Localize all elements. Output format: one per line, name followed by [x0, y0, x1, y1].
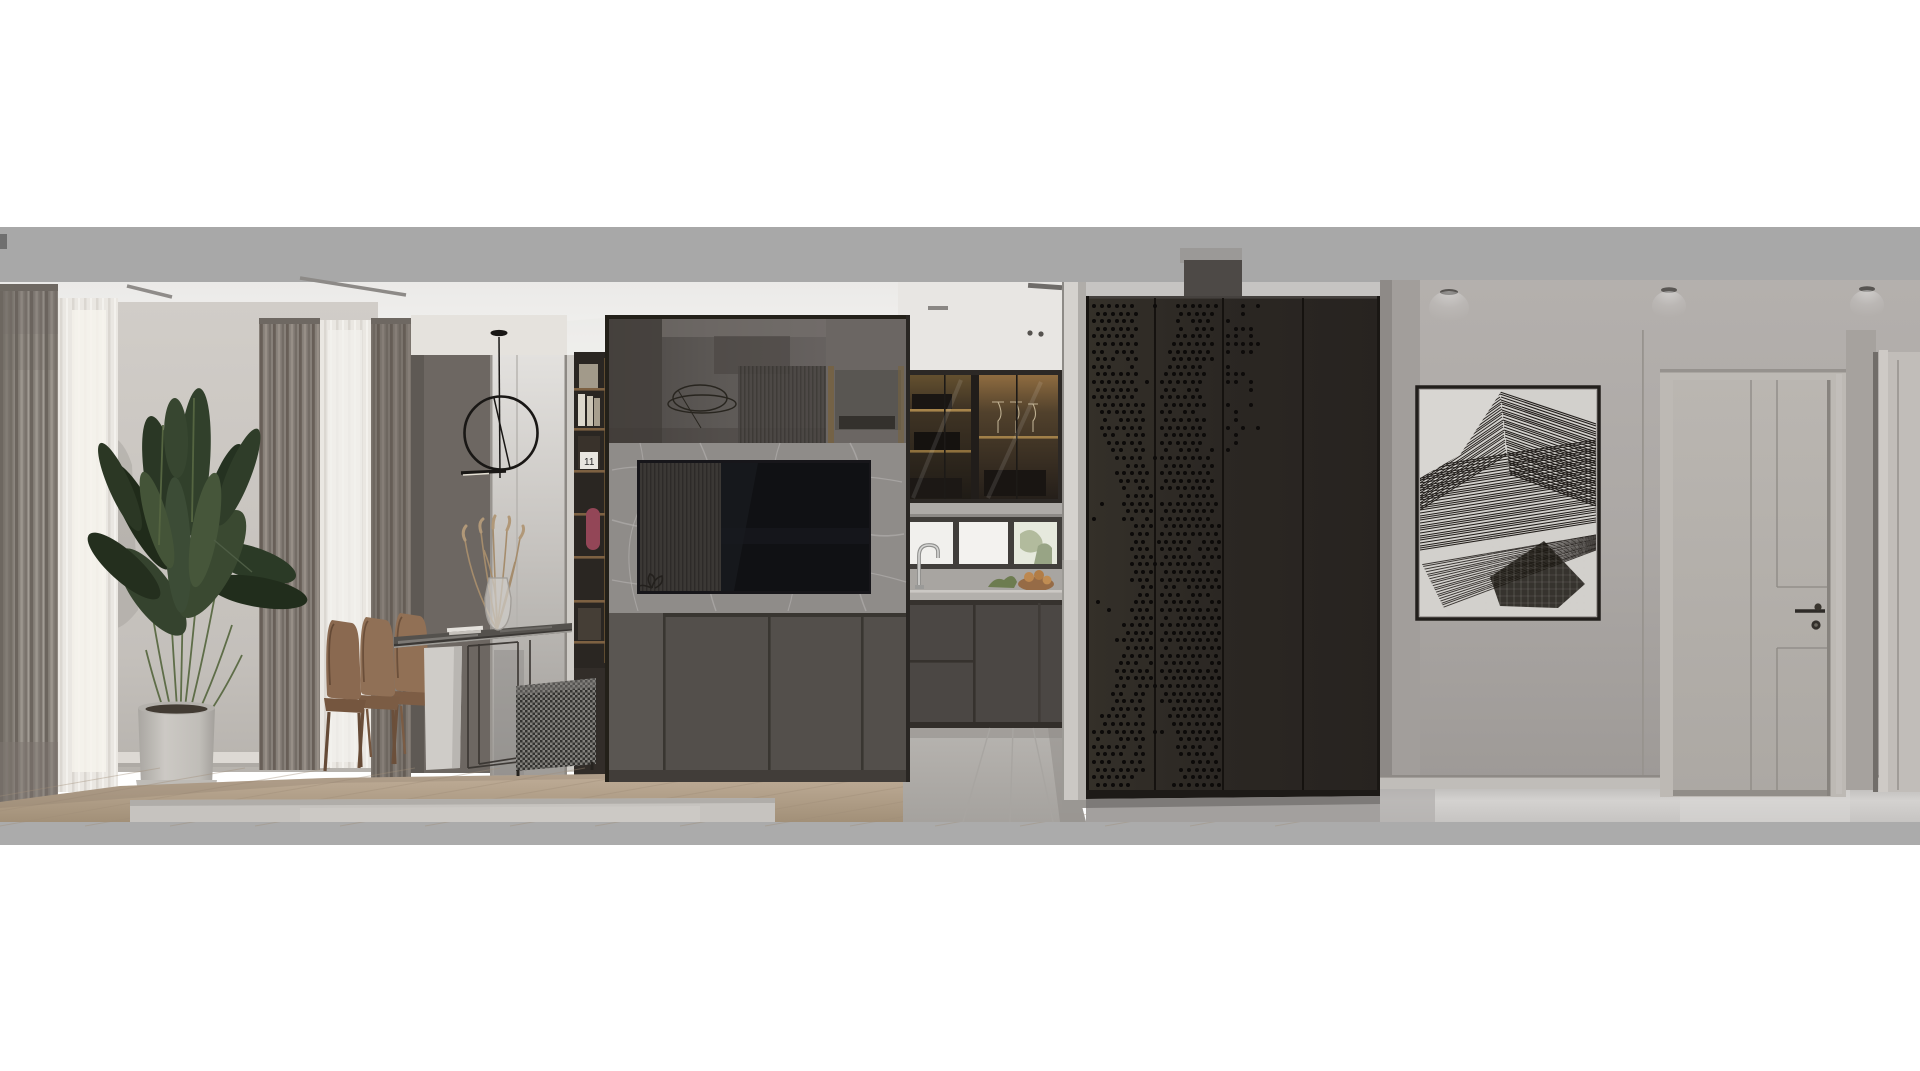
svg-text:11: 11 [584, 457, 595, 468]
